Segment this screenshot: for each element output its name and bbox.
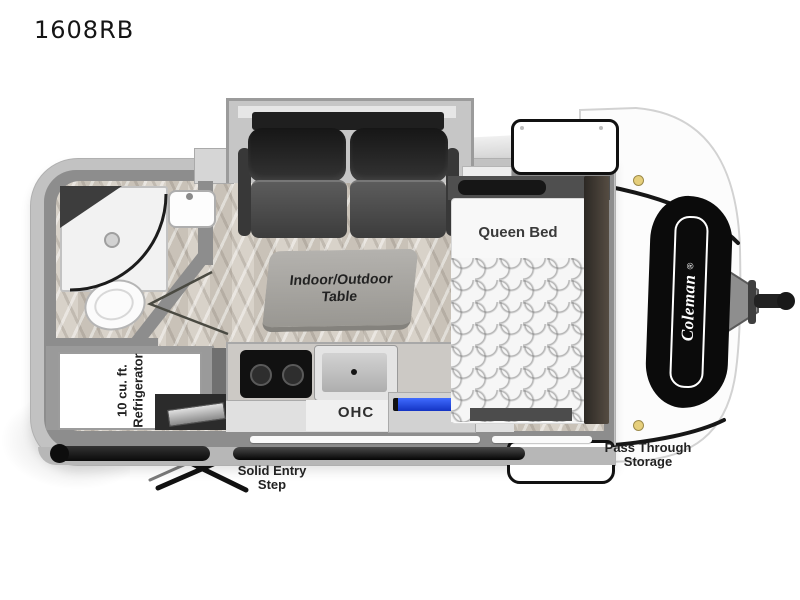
solid-entry-step-label: Solid Entry Step: [212, 464, 332, 493]
queen-bed-label: Queen Bed: [451, 224, 585, 241]
hitch-ball-knob: [777, 292, 795, 310]
skirt-trim: [250, 436, 480, 443]
table-label-line2: Table: [321, 288, 358, 306]
awning-rail: [233, 447, 525, 460]
registered-mark-icon: ®: [685, 263, 695, 270]
floorplan-canvas: 1608RB 10 cu. ft. Refrigerator: [0, 0, 800, 600]
table-label-line1: Indoor/Outdoor: [289, 270, 394, 289]
clearance-light-icon: [633, 420, 644, 431]
coleman-logo-badge: Coleman ®: [644, 195, 733, 410]
coleman-logo-lozenge: Coleman ®: [669, 215, 709, 388]
pass-through-storage-label: Pass Through Storage: [590, 441, 706, 470]
shower-drain: [104, 232, 120, 248]
sofa-back-cushion-left: [248, 128, 346, 182]
indoor-outdoor-table: Indoor/Outdoor Table: [262, 249, 419, 333]
kitchen-sink-drain: [351, 369, 357, 375]
window-screw: [599, 126, 603, 130]
window-screw: [520, 126, 524, 130]
coleman-logo-text: Coleman: [678, 274, 700, 341]
bed-pillow: [458, 180, 546, 195]
bathroom-faucet: [186, 193, 193, 200]
burner-icon: [282, 364, 304, 386]
sofa-back-cushion-right: [350, 128, 448, 182]
bed-foot-shelf: [470, 408, 572, 421]
burner-icon: [250, 364, 272, 386]
refrigerator-label-text: 10 cu. ft. Refrigerator: [114, 354, 145, 428]
sofa-seat-cushion-left: [251, 180, 347, 238]
clearance-light-icon: [633, 175, 644, 186]
wardrobe: [584, 176, 609, 424]
skirt-trim: [492, 436, 592, 443]
model-title: 1608RB: [34, 16, 134, 44]
shower-corner-shelf: [60, 186, 122, 228]
sofa-seat-cushion-right: [350, 180, 446, 238]
bed-quilt-pattern: [451, 258, 585, 422]
rear-bumper: [58, 446, 210, 461]
hitch-coupler: [754, 294, 786, 308]
hitch-jack: [748, 280, 756, 324]
rear-bumper-cap: [50, 444, 69, 463]
